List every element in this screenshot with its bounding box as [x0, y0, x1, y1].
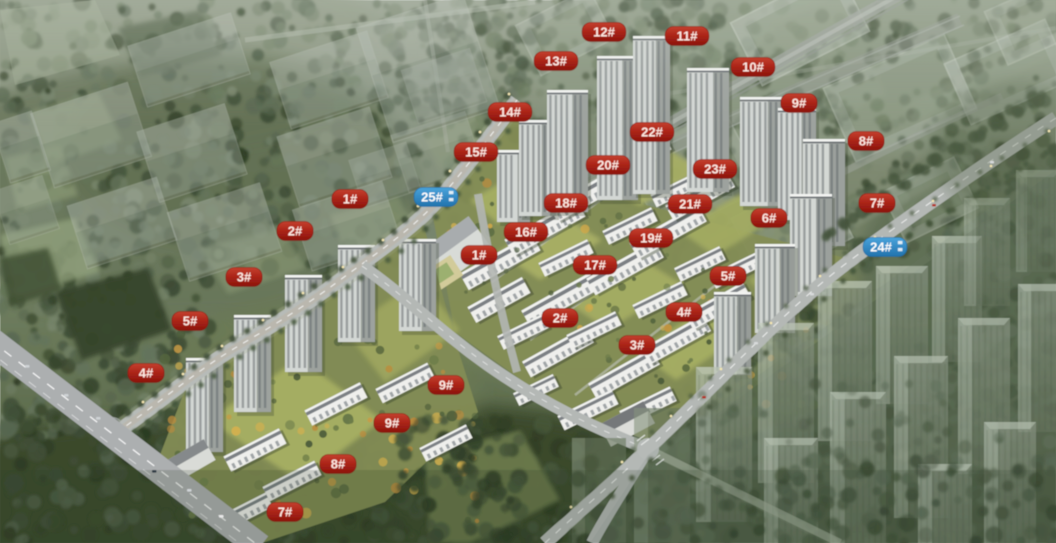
svg-text:13#: 13# [545, 54, 567, 69]
svg-text:5#: 5# [183, 314, 198, 329]
svg-text:23#: 23# [704, 162, 726, 177]
svg-text:12#: 12# [593, 25, 615, 40]
svg-text:25#: 25# [421, 190, 443, 205]
svg-text:4#: 4# [139, 366, 154, 381]
svg-text:1#: 1# [343, 192, 358, 207]
svg-text:24#: 24# [870, 240, 892, 255]
svg-text:3#: 3# [630, 338, 645, 353]
svg-text:3#: 3# [237, 270, 252, 285]
svg-text:7#: 7# [870, 196, 885, 211]
svg-text:22#: 22# [641, 125, 663, 140]
svg-text:9#: 9# [792, 96, 807, 111]
svg-text:1#: 1# [472, 248, 487, 263]
svg-text:4#: 4# [677, 305, 692, 320]
svg-text:11#: 11# [677, 29, 699, 44]
svg-text:21#: 21# [679, 197, 701, 212]
svg-text:18#: 18# [555, 196, 577, 211]
svg-text:20#: 20# [597, 158, 619, 173]
svg-text:5#: 5# [721, 269, 736, 284]
svg-text:19#: 19# [640, 231, 662, 246]
svg-text:10#: 10# [742, 60, 764, 75]
svg-text:2#: 2# [553, 311, 568, 326]
svg-text:17#: 17# [584, 258, 606, 273]
svg-text:16#: 16# [515, 225, 537, 240]
svg-text:15#: 15# [465, 145, 487, 160]
svg-text:14#: 14# [499, 105, 521, 120]
svg-text:2#: 2# [288, 224, 303, 239]
svg-text:6#: 6# [762, 211, 777, 226]
svg-text:8#: 8# [859, 134, 874, 149]
svg-text:9#: 9# [385, 416, 400, 431]
svg-text:9#: 9# [439, 378, 454, 393]
svg-text:7#: 7# [278, 505, 293, 520]
svg-text:8#: 8# [331, 457, 346, 472]
